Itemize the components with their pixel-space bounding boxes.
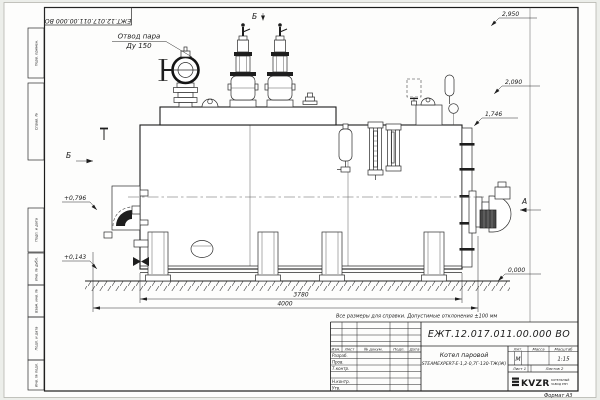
sheets-total: Листов 2	[545, 366, 564, 371]
lit-header: Лит.	[513, 347, 523, 352]
rear-top-box	[416, 105, 442, 125]
titleblock-doc-number: ЕЖТ.12.017.011.00.000 ВО	[428, 329, 570, 340]
margin-label: Подп. и дата	[35, 218, 39, 242]
product-name: Котел паровой	[440, 352, 489, 359]
mass-header: Масса	[532, 347, 545, 352]
margin-label: Инв. № подл.	[35, 363, 39, 387]
dimension-value: 4000	[277, 301, 292, 308]
margin-label: Справ. №	[35, 113, 39, 130]
callout-text: Ду 150	[125, 42, 152, 50]
support-leg	[422, 232, 447, 281]
logo-text: KVZR	[521, 379, 550, 389]
col-header: Лист	[344, 347, 355, 352]
elevation-value: 0,000	[508, 267, 525, 274]
sheet-number: Лист 1	[512, 366, 526, 371]
logo-subtext: ЗАВОД РЭП	[551, 382, 568, 386]
scale-header: Масштаб	[554, 347, 573, 352]
top-docnumber-text: ЕЖТ.12.017.011.00.000 ВО	[45, 17, 132, 24]
elevation-value: 2,950	[502, 11, 519, 18]
role-label: Пров.	[332, 360, 344, 365]
elevation-value: +0,796	[64, 195, 86, 202]
view-letter: Б	[66, 151, 71, 160]
role-label: Утв.	[332, 386, 340, 391]
dimension-value: 3780	[293, 292, 308, 299]
elevation-value: 1,746	[485, 111, 502, 118]
col-header: Дата	[409, 347, 421, 352]
handwheel	[162, 59, 165, 81]
callout-text: Отвод пара	[118, 33, 161, 41]
drawing-page: ЕЖТ.12.017.011.00.000 ВО Перв. примен. С…	[0, 0, 600, 400]
role-label: Т.контр.	[332, 366, 349, 371]
col-header: № докум.	[363, 347, 383, 352]
format-label: Формат А3	[544, 393, 572, 399]
support-leg	[256, 232, 281, 281]
elevation-value: +0,143	[64, 254, 86, 261]
reference-note: Все размеры для справки. Допустимые откл…	[336, 314, 497, 320]
col-header: Изм.	[332, 347, 341, 352]
margin-label: Перв. примен.	[35, 40, 39, 66]
margin-label: Подп. и дата	[35, 327, 39, 351]
ground	[85, 281, 510, 291]
col-header: Подп.	[393, 347, 405, 352]
elevation-value: 2,090	[505, 79, 522, 86]
role-label: Разраб.	[332, 353, 348, 358]
view-letter: Б	[252, 12, 257, 21]
view-letter: А	[521, 197, 527, 206]
scale-value: 1:15	[557, 357, 570, 363]
support-leg	[146, 232, 171, 281]
drawing-sheet: ЕЖТ.12.017.011.00.000 ВО Перв. примен. С…	[0, 0, 600, 400]
water-level-gauge	[368, 122, 383, 180]
product-designation: STEAMEXPERT-Е-1,2-0,7Г-130-ТЖ(Ж)	[422, 361, 507, 367]
margin-label: Инв. № дубл.	[35, 257, 39, 281]
lit-value: М	[515, 356, 521, 363]
margin-label: Взам. инв. №	[35, 289, 39, 313]
support-leg	[320, 232, 345, 281]
small-top-valve	[410, 97, 418, 105]
role-label: Н.контр.	[332, 379, 350, 384]
ground-hatch	[85, 282, 510, 292]
boiler-top-dome	[160, 107, 336, 125]
